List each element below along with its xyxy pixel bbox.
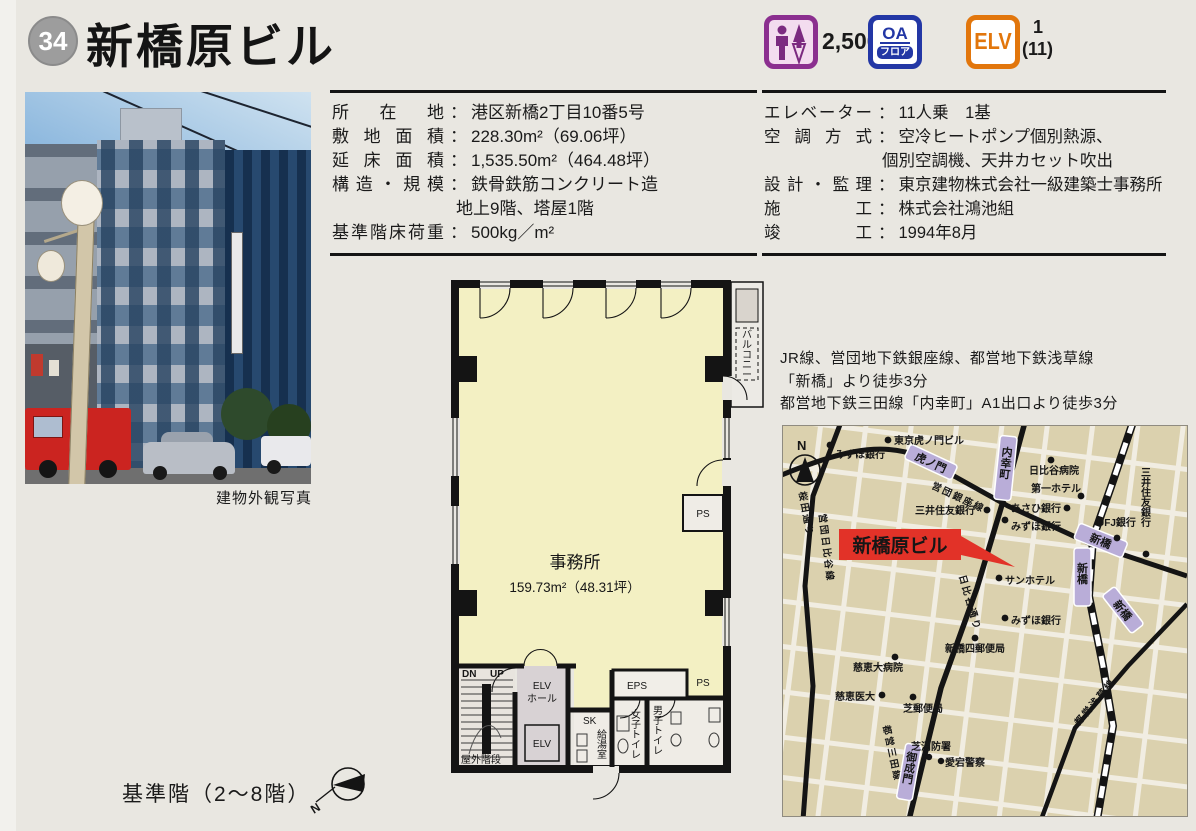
spec-label: エレベーター (764, 101, 872, 125)
place-label: 芝郵便局 (903, 702, 943, 715)
eps-label: EPS (627, 681, 647, 692)
outdoor-stairs-label: 屋外階段 (461, 753, 501, 766)
location-map: N 桜田通り 営団日比谷線 営団銀座線 日比谷通り 都営三田線 都営浅草線 虎ノ… (782, 425, 1188, 817)
photo-car-wheel (213, 466, 227, 480)
place-label: 慈恵医大 (835, 690, 875, 703)
ps-core-label: PS (696, 678, 710, 689)
building-number: 34 (39, 26, 68, 57)
spec-value: 個別空調機、天井カセット吹出 (882, 149, 1113, 173)
spec-table-right: エレベーター：11人乗 1基 空調方式：空冷ヒートポンプ個別熱源、 個別空調機、… (762, 90, 1166, 256)
pantry-label: 給湯室 (597, 728, 607, 761)
elv-hall-label-1: ELV (533, 681, 551, 692)
ps-label: PS (696, 509, 710, 520)
spec-value: 空冷ヒートポンプ個別熱源、 (899, 125, 1113, 149)
spec-row: 空調方式：空冷ヒートポンプ個別熱源、 (764, 125, 1166, 149)
place-label: 日比谷病院 (1029, 464, 1079, 477)
floor-plan-svg: バルコニー (435, 268, 775, 802)
photo-vertical-sign (231, 232, 243, 354)
spec-label: 所在地 (332, 101, 444, 125)
office-area-label: 159.73m²（48.31坪） (509, 580, 640, 595)
access-line: 「新橋」より徒歩3分 (780, 371, 1118, 394)
colon: ： (872, 101, 899, 125)
page-edge (0, 0, 16, 831)
colon: ： (872, 197, 899, 221)
spec-label: 竣工 (764, 221, 872, 245)
map-svg: N 桜田通り 営団日比谷線 営団銀座線 日比谷通り 都営三田線 都営浅草線 虎ノ… (783, 426, 1187, 816)
elv-cab-label: ELV (533, 739, 551, 750)
balcony-label: バルコニー (742, 329, 752, 381)
spec-table-left: 所在地：港区新橋2丁目10番5号 敷地面積：228.30m²（69.06坪） 延… (330, 90, 757, 256)
spec-value: 鉄骨鉄筋コンクリート造 (471, 173, 658, 197)
stairs-dn-label: DN (462, 669, 476, 680)
spec-label: 敷地面積 (332, 125, 444, 149)
stairs-up-label: UP (490, 669, 504, 680)
office-room-label: 事務所 (550, 553, 601, 572)
spec-label: 構造・規模 (332, 173, 444, 197)
place-label: 新橋四郵便局 (945, 642, 1005, 655)
spec-row-continuation: 個別空調機、天井カセット吹出 (764, 149, 1166, 173)
spec-row: 所在地：港区新橋2丁目10番5号 (332, 101, 757, 125)
place-label: 慈恵大病院 (853, 661, 903, 674)
photo-tree (221, 388, 273, 440)
spec-row: エレベーター：11人乗 1基 (764, 101, 1166, 125)
womens-toilet-label: 女子トイレ (631, 708, 641, 761)
map-compass-n: N (797, 438, 806, 453)
spec-row: 延床面積：1,535.50m²（464.48坪） (332, 149, 757, 173)
spec-value: 地上9階、塔屋1階 (456, 197, 594, 221)
building-number-badge: 34 (28, 16, 78, 66)
map-building-label: 新橋原ビル (852, 534, 947, 557)
elv-hall-label-2: ホール (527, 693, 557, 705)
colon: ： (444, 101, 471, 125)
photo-truck-wheel (39, 460, 57, 478)
colon: ： (444, 149, 471, 173)
photo-truck-window (33, 416, 63, 438)
colon: ： (444, 221, 471, 245)
colon: ： (872, 125, 899, 149)
spec-value: 228.30m²（69.06坪） (471, 125, 636, 149)
station-shimbashi-vert: 新橋 (1074, 548, 1091, 606)
spec-label: 施工 (764, 197, 872, 221)
spec-value: 株式会社鴻池組 (899, 197, 1015, 221)
spec-value: 東京建物株式会社一級建築士事務所 (899, 173, 1163, 197)
place-label: あさひ銀行 (1011, 502, 1061, 515)
photo-van-wheel (267, 460, 281, 474)
colon: ： (872, 221, 899, 245)
sk-label: SK (583, 716, 597, 727)
person-arrows-icon (769, 20, 813, 64)
plan-north-arrow: N (308, 756, 378, 823)
elevator-icon-label: ELV (974, 29, 1011, 55)
mens-toilet-label: 男子トイレ (653, 705, 663, 757)
place-label: 愛宕警察 (945, 756, 986, 769)
place-label: みずほ銀行 (1011, 614, 1061, 627)
photo-shop-sign (49, 360, 59, 376)
spec-row: 構造・規模：鉄骨鉄筋コンクリート造 (332, 173, 757, 197)
place-label: 三井住友銀行 (1140, 467, 1151, 529)
spec-value: 1994年8月 (899, 221, 978, 245)
spec-row: 設計・監理：東京建物株式会社一級建築士事務所 (764, 173, 1166, 197)
elevator-persons: (11) (1022, 39, 1053, 60)
spec-row: 基準階床荷重：500kg／m² (332, 221, 757, 245)
spec-value: 1,535.50m²（464.48坪） (471, 149, 660, 173)
place-label: 第一ホテル (1031, 482, 1081, 495)
photo-lamp-globe (61, 180, 103, 226)
photo-truck-wheel (99, 460, 117, 478)
spec-label: 空調方式 (764, 125, 872, 149)
colon: ： (444, 173, 471, 197)
spec-row-continuation: 地上9階、塔屋1階 (332, 197, 757, 221)
spec-row: 施工：株式会社鴻池組 (764, 197, 1166, 221)
colon: ： (872, 173, 899, 197)
spec-value: 港区新橋2丁目10番5号 (471, 101, 645, 125)
access-line: 都営地下鉄三田線「内幸町」A1出口より徒歩3分 (780, 393, 1118, 416)
photo-lamp-globe (37, 250, 65, 282)
building-photo (25, 92, 311, 484)
place-label: みずほ銀行 (835, 448, 885, 461)
oa-floor-label: フロア (877, 46, 913, 59)
photo-caption: 建物外観写真 (196, 487, 312, 508)
photo-car-wheel (153, 466, 167, 480)
plan-compass-n: N (308, 800, 323, 816)
elevator-icon: ELV (966, 15, 1020, 69)
spec-row: 敷地面積：228.30m²（69.06坪） (332, 125, 757, 149)
spec-label: 延床面積 (332, 149, 444, 173)
spec-value: 500kg／m² (471, 221, 554, 245)
plan-compass-svg: N (308, 756, 378, 818)
floor-capacity-icon (764, 15, 818, 69)
spec-row: 竣工：1994年8月 (764, 221, 1166, 245)
plan-ps-shaft: PS (683, 495, 723, 531)
place-label: 三井住友銀行 (915, 504, 975, 517)
access-info: JR線、営団地下鉄銀座線、都営地下鉄浅草線 「新橋」より徒歩3分 都営地下鉄三田… (780, 348, 1118, 416)
svg-text:新橋: 新橋 (1077, 561, 1089, 586)
place-label: みずほ銀行 (1011, 520, 1061, 533)
elevator-count: 1 (1033, 17, 1043, 38)
page-title: 新橋原ビル (86, 8, 336, 77)
place-label: サンホテル (1005, 575, 1055, 587)
oa-label: OA (880, 25, 910, 44)
spec-label: 設計・監理 (764, 173, 872, 197)
place-label: UFJ銀行 (1097, 516, 1136, 529)
floor-caption: 基準階（2〜8階） (122, 778, 310, 808)
spec-label: 基準階床荷重 (332, 221, 444, 245)
place-label: 東京虎ノ門ビル (894, 434, 964, 447)
photo-shop-sign (31, 354, 43, 376)
oa-floor-icon: OA フロア (868, 15, 922, 69)
plan-balcony: バルコニー (731, 282, 763, 407)
colon: ： (444, 125, 471, 149)
place-label: 芝消防署 (911, 740, 951, 753)
access-line: JR線、営団地下鉄銀座線、都営地下鉄浅草線 (780, 348, 1118, 371)
floor-plan: バルコニー (435, 268, 775, 807)
spec-value: 11人乗 1基 (899, 101, 991, 125)
